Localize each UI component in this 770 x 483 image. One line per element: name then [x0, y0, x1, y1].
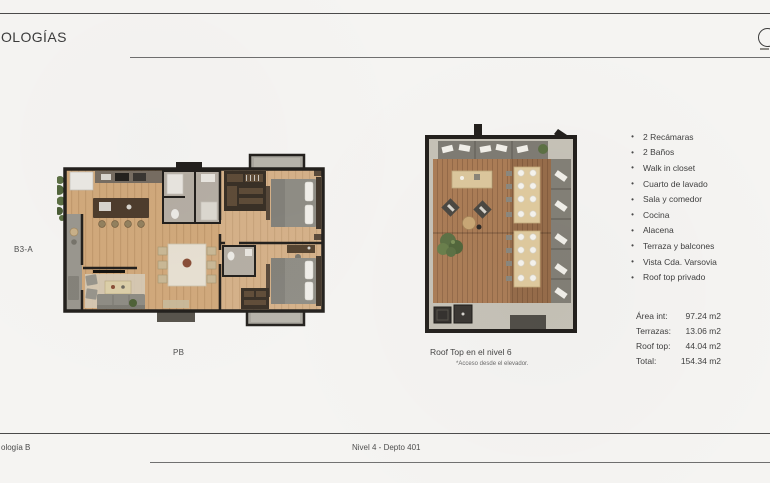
- footer-typology-label: ología B: [1, 443, 30, 452]
- floorplan-pb-drawing: [57, 150, 327, 335]
- area-label: Área int:: [636, 311, 668, 326]
- feature-item: •Cocina: [630, 207, 765, 223]
- feature-item: •Alacena: [630, 223, 765, 239]
- round-table: [463, 217, 476, 230]
- footer-top-rule: [0, 433, 770, 434]
- feature-item: •Terraza y balcones: [630, 238, 765, 254]
- area-row: Área int:97.24 m2: [636, 311, 721, 326]
- rooftop-caption: Roof Top en el nivel 6: [430, 347, 512, 357]
- rooftop-note: *Acceso desde el elevador.: [456, 361, 528, 367]
- area-value: 13.06 m2: [686, 326, 721, 341]
- footer-bottom-rule: [150, 462, 770, 463]
- header-under-rule: [130, 57, 770, 58]
- area-value: 97.24 m2: [686, 311, 721, 326]
- brand-logo-icon: [758, 28, 770, 47]
- area-row: Roof top:44.04 m2: [636, 341, 721, 356]
- bullet-icon: •: [630, 195, 635, 204]
- feature-item: •Vista Cda. Varsovia: [630, 254, 765, 270]
- bullet-icon: •: [630, 273, 635, 282]
- brand-logo-text-mark: [760, 48, 769, 50]
- door-mat: [510, 315, 546, 329]
- areas-table: Área int:97.24 m2 Terrazas:13.06 m2 Roof…: [636, 311, 721, 371]
- floorplan-side-label: B3-A: [14, 245, 33, 254]
- area-row: Terrazas:13.06 m2: [636, 326, 721, 341]
- top-lounge-band: [438, 141, 548, 159]
- dining-area: [158, 244, 216, 286]
- entry-block: [176, 162, 202, 172]
- header-top-rule: [0, 13, 770, 14]
- feature-item: •2 Recámaras: [630, 129, 765, 145]
- right-lounger-band: [551, 159, 571, 303]
- bathroom-main: [163, 171, 220, 223]
- footer-unit-label: Nivel 4 - Depto 401: [352, 443, 420, 452]
- area-label: Roof top:: [636, 341, 671, 356]
- bullet-icon: •: [630, 226, 635, 235]
- plant: [538, 144, 548, 154]
- bullet-icon: •: [630, 257, 635, 266]
- area-value: 154.34 m2: [681, 356, 721, 371]
- typology-sheet: OLOGÍAS: [0, 0, 770, 483]
- feature-item: •2 Baños: [630, 145, 765, 161]
- feature-item: •Sala y comedor: [630, 191, 765, 207]
- rooftop-plan-drawing: [412, 121, 592, 336]
- area-row: Total:154.34 m2: [636, 356, 721, 371]
- bullet-icon: •: [630, 179, 635, 188]
- side-terrace: [66, 214, 82, 310]
- area-value: 44.04 m2: [686, 341, 721, 356]
- bullet-icon: •: [630, 163, 635, 172]
- page-title: OLOGÍAS: [1, 29, 67, 45]
- feature-item: •Roof top privado: [630, 269, 765, 285]
- features-list: •2 Recámaras •2 Baños •Walk in closet •C…: [630, 129, 765, 285]
- bullet-icon: •: [630, 148, 635, 157]
- area-label: Terrazas:: [636, 326, 671, 341]
- bullet-icon: •: [630, 241, 635, 250]
- feature-item: •Cuarto de lavado: [630, 176, 765, 192]
- floorplan-caption: PB: [173, 348, 184, 357]
- bullet-icon: •: [630, 132, 635, 141]
- feature-item: •Walk in closet: [630, 160, 765, 176]
- bullet-icon: •: [630, 210, 635, 219]
- area-label: Total:: [636, 356, 656, 371]
